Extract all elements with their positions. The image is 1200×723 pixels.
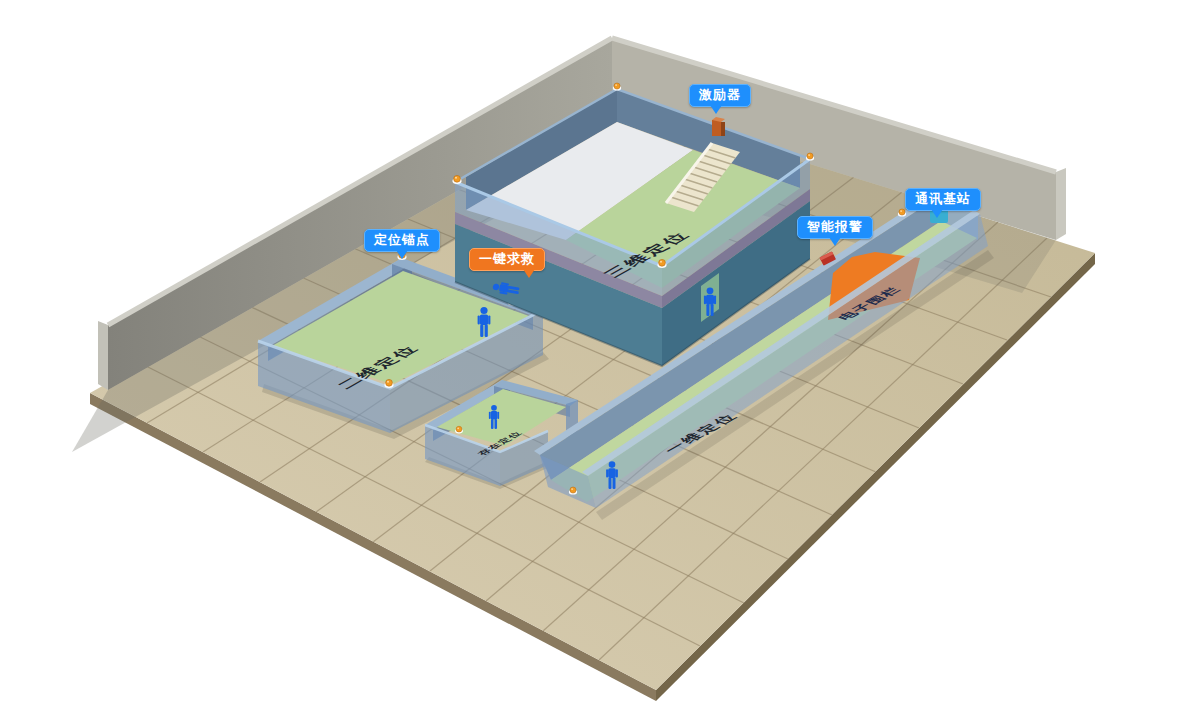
callout-smart-alarm: 智能报警 [797,216,873,239]
callout-pointer [931,209,943,218]
callout-one-key-sos-text: 一键求救 [479,251,535,266]
scene: 三维定位 二维定位 存在定位 一维定位 电子围栏 激励器 通讯基站 智能报警 定… [0,0,1200,723]
callout-positioning-anchor: 定位锚点 [364,229,440,252]
callout-one-key-sos: 一键求救 [469,248,545,271]
callout-comm-base-station: 通讯基站 [905,188,981,211]
callout-comm-base-station-text: 通讯基站 [915,191,971,206]
scene-canvas [0,0,1200,723]
callout-pointer [829,237,841,246]
exciter-device-icon [712,117,725,136]
callout-pointer [523,269,535,278]
callout-positioning-anchor-text: 定位锚点 [374,232,430,247]
callout-exciter: 激励器 [689,84,751,107]
callout-pointer [710,105,722,114]
callout-exciter-text: 激励器 [699,87,741,102]
callout-pointer [396,250,408,259]
callout-smart-alarm-text: 智能报警 [807,219,863,234]
